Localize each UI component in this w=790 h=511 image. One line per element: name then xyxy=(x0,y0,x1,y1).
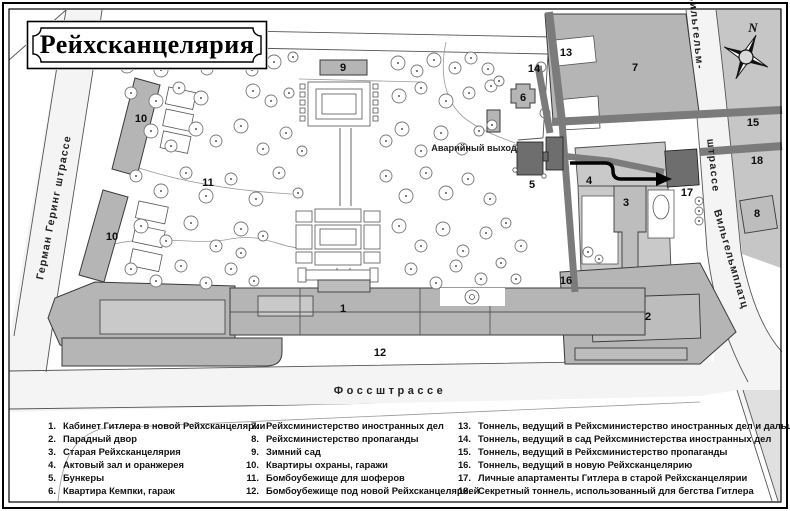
building-hitler-apartments xyxy=(665,149,699,187)
map-marker-15: 15 xyxy=(747,117,759,129)
legend-item-number: 17. xyxy=(453,471,471,484)
legend-item-text: Квартиры охраны, гаражи xyxy=(266,458,388,471)
legend-item-text: Квартира Кемпки, гараж xyxy=(63,484,175,497)
legend-item-number: 12. xyxy=(241,484,259,497)
legend-item-18: 18.Секретный тоннель, использованный для… xyxy=(453,484,778,497)
legend-item-5: 5.Бункеры xyxy=(38,471,241,484)
legend-item-14: 14.Тоннель, ведущий в сад Рейхсминистерс… xyxy=(453,432,778,445)
garden-portico xyxy=(318,280,370,292)
map-marker-14: 14 xyxy=(528,63,541,75)
map-marker-10: 10 xyxy=(135,113,147,125)
legend-item-text: Тоннель, ведущий в новую Рейхсканцелярию xyxy=(478,458,692,471)
map-marker-3: 3 xyxy=(623,197,629,209)
map-marker-5: 5 xyxy=(529,179,535,191)
legend-item-text: Бункеры xyxy=(63,471,104,484)
legend-item-number: 7. xyxy=(241,419,259,432)
legend-item-text: Бомбоубежище под новой Рейхсканцелярией xyxy=(266,484,479,497)
legend-item-text: Зимний сад xyxy=(266,445,321,458)
legend: 1.Кабинет Гитлера в новой Рейхсканцеляри… xyxy=(38,419,778,498)
compass-north-label: N xyxy=(747,20,758,35)
fuehrerbunker xyxy=(517,142,543,175)
legend-item-text: Старая Рейхсканцелярия xyxy=(63,445,181,458)
map-marker-2: 2 xyxy=(645,311,651,323)
legend-item-text: Кабинет Гитлера в новой Рейхсканцелярии xyxy=(63,419,265,432)
legend-item-number: 18. xyxy=(453,484,471,497)
map-marker-9: 9 xyxy=(340,62,346,74)
emergency-exit-label: Аварийный выход xyxy=(431,143,517,153)
legend-item-number: 13. xyxy=(453,419,471,432)
map-marker-11: 11 xyxy=(202,177,214,189)
legend-item-number: 14. xyxy=(453,432,471,445)
legend-column-3: 13.Тоннель, ведущий в Рейхсминистерство … xyxy=(453,419,778,498)
legend-item-number: 5. xyxy=(38,471,56,484)
parterre-south xyxy=(296,209,380,282)
legend-item-8: 8.Рейхсминистерство пропаганды xyxy=(241,432,453,445)
map-marker-1: 1 xyxy=(340,303,346,315)
map-marker-12: 12 xyxy=(374,347,386,359)
legend-item-7: 7.Рейхсминистерство иностранных дел xyxy=(241,419,453,432)
garden-plots xyxy=(156,87,200,153)
legend-item-number: 9. xyxy=(241,445,259,458)
legend-item-number: 16. xyxy=(453,458,471,471)
map-marker-8: 8 xyxy=(754,208,760,220)
legend-item-text: Актовый зал и оранжерея xyxy=(63,458,184,471)
legend-item-number: 6. xyxy=(38,484,56,497)
legend-item-number: 3. xyxy=(38,445,56,458)
legend-item-1: 1.Кабинет Гитлера в новой Рейхсканцеляри… xyxy=(38,419,241,432)
legend-item-9: 9.Зимний сад xyxy=(241,445,453,458)
map-marker-18: 18 xyxy=(751,155,763,167)
legend-item-number: 8. xyxy=(241,432,259,445)
legend-item-6: 6.Квартира Кемпки, гараж xyxy=(38,484,241,497)
legend-item-number: 15. xyxy=(453,445,471,458)
map-marker-13: 13 xyxy=(560,47,572,59)
legend-item-number: 10. xyxy=(241,458,259,471)
emergency-exit-dot xyxy=(542,174,546,178)
map-marker-17: 17 xyxy=(681,187,693,199)
legend-item-15: 15.Тоннель, ведущий в Рейхсминистерство … xyxy=(453,445,778,458)
legend-item-text: Парадный двор xyxy=(63,432,137,445)
vorbunker xyxy=(546,137,563,170)
legend-item-12: 12.Бомбоубежище под новой Рейхсканцеляри… xyxy=(241,484,453,497)
emergency-exit-dot xyxy=(513,168,517,172)
tunnel-16 xyxy=(562,122,575,292)
legend-item-text: Тоннель, ведущий в Рейхсминистерство про… xyxy=(478,445,727,458)
title-plaque: Рейхсканцелярия xyxy=(26,20,268,70)
map-marker-6: 6 xyxy=(520,92,526,104)
legend-item-text: Личные апартаменты Гитлера в старой Рейх… xyxy=(478,471,747,484)
map-page: 12345678910101112131415161718 Аварийный … xyxy=(0,0,790,511)
page-title: Рейхсканцелярия xyxy=(26,20,268,70)
legend-item-3: 3.Старая Рейхсканцелярия xyxy=(38,445,241,458)
legend-item-text: Рейхсминистерство пропаганды xyxy=(266,432,419,445)
new-chancellery-south-wing xyxy=(62,338,282,366)
legend-item-text: Рейхсминистерство иностранных дел xyxy=(266,419,444,432)
building-guard-quarters-south xyxy=(79,190,128,282)
parterre-north xyxy=(300,82,378,126)
legend-item-number: 4. xyxy=(38,458,56,471)
legend-item-13: 13.Тоннель, ведущий в Рейхсминистерство … xyxy=(453,419,778,432)
legend-item-number: 11. xyxy=(241,471,259,484)
street-label-voss: Фоссштрассе xyxy=(334,385,446,397)
legend-item-number: 1. xyxy=(38,419,56,432)
legend-item-17: 17.Личные апартаменты Гитлера в старой Р… xyxy=(453,471,778,484)
legend-item-text: Тоннель, ведущий в Рейхсминистерство ино… xyxy=(478,419,790,432)
map-marker-4: 4 xyxy=(586,175,593,187)
legend-item-10: 10.Квартиры охраны, гаражи xyxy=(241,458,453,471)
legend-item-4: 4.Актовый зал и оранжерея xyxy=(38,458,241,471)
legend-column-2: 7.Рейхсминистерство иностранных дел8.Рей… xyxy=(241,419,453,498)
legend-column-1: 1.Кабинет Гитлера в новой Рейхсканцеляри… xyxy=(38,419,241,498)
legend-item-text: Тоннель, ведущий в сад Рейхсминистерства… xyxy=(478,432,771,445)
map-marker-16: 16 xyxy=(560,275,572,287)
legend-item-11: 11.Бомбоубежище для шоферов xyxy=(241,471,453,484)
legend-item-text: Секретный тоннель, использованный для бе… xyxy=(478,484,754,497)
map-marker-10: 10 xyxy=(106,231,118,243)
legend-item-16: 16.Тоннель, ведущий в новую Рейхсканцеля… xyxy=(453,458,778,471)
legend-item-number: 2. xyxy=(38,432,56,445)
legend-item-text: Бомбоубежище для шоферов xyxy=(266,471,405,484)
legend-item-2: 2.Парадный двор xyxy=(38,432,241,445)
map-marker-7: 7 xyxy=(632,62,638,74)
